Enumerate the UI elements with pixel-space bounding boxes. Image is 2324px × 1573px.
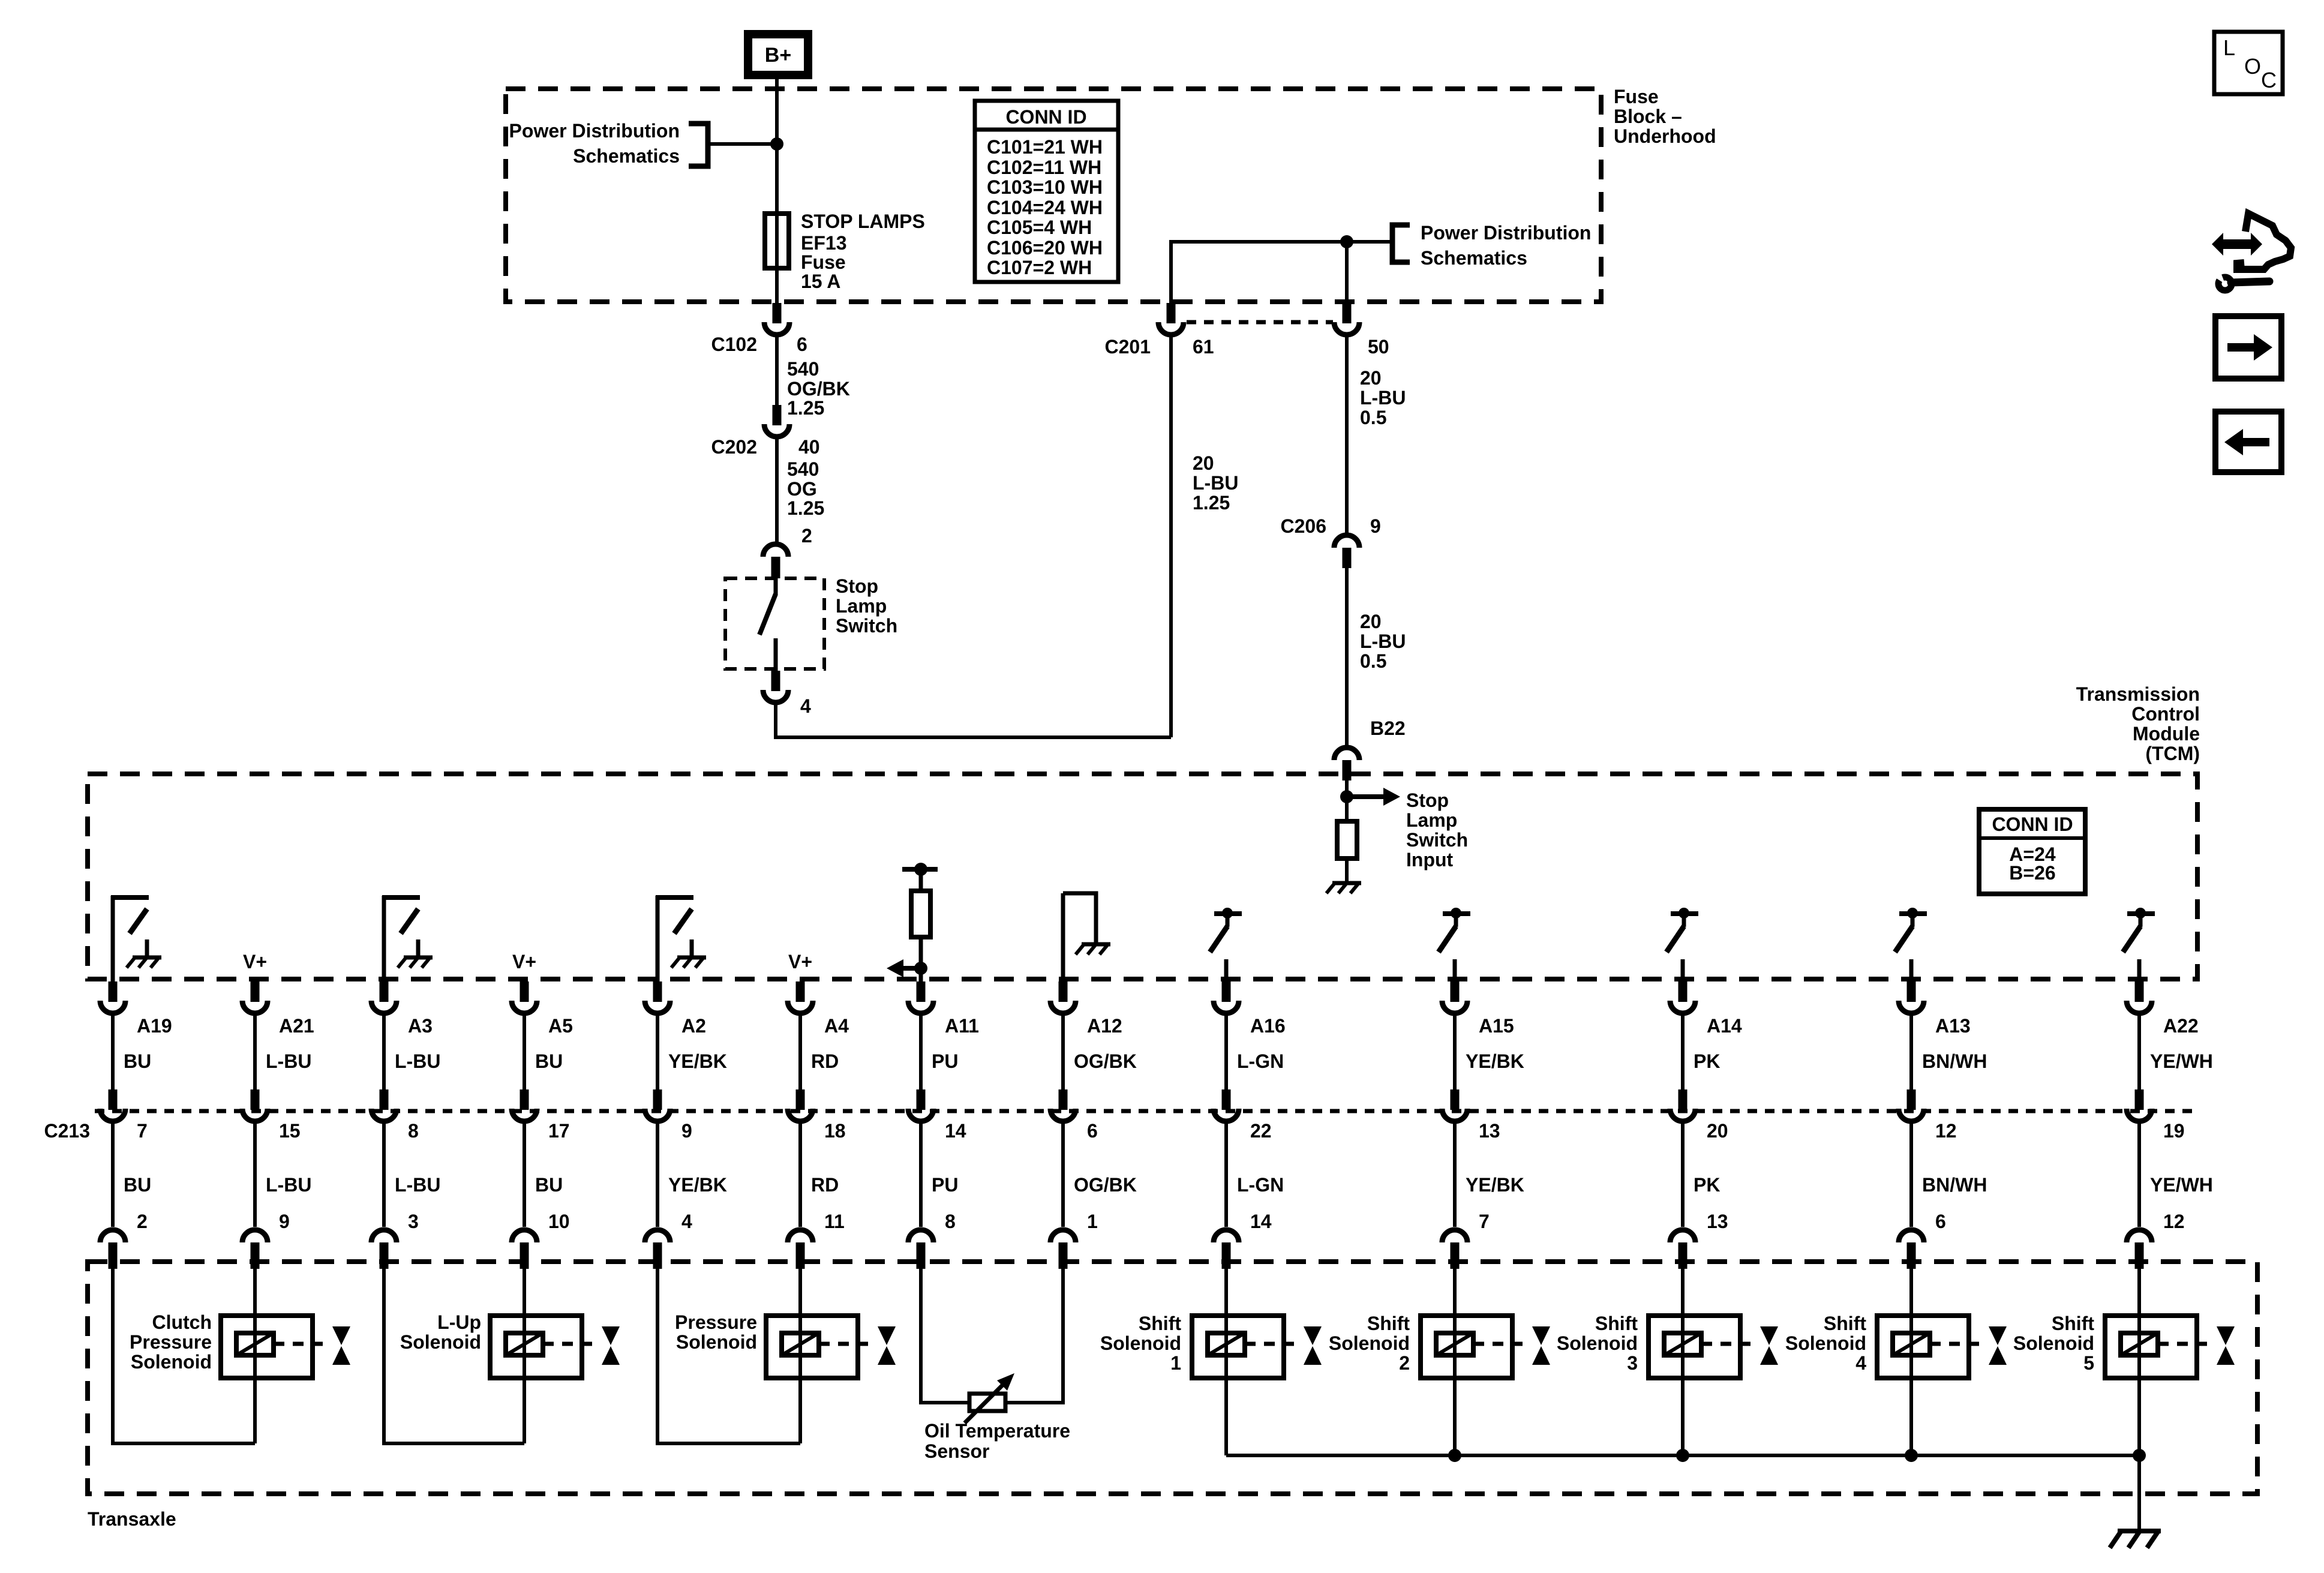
svg-text:61: 61 — [1193, 336, 1214, 358]
svg-text:Solenoid: Solenoid — [1557, 1332, 1638, 1354]
svg-text:9: 9 — [279, 1211, 290, 1232]
svg-text:540: 540 — [787, 458, 819, 480]
svg-text:8: 8 — [408, 1120, 419, 1142]
svg-text:Sensor: Sensor — [924, 1440, 989, 1462]
svg-text:Power Distribution: Power Distribution — [509, 120, 680, 142]
svg-text:14: 14 — [1250, 1211, 1272, 1232]
svg-text:Fuse: Fuse — [1614, 86, 1659, 107]
svg-text:PU: PU — [932, 1050, 958, 1072]
svg-text:4: 4 — [681, 1211, 692, 1232]
svg-text:2: 2 — [137, 1211, 148, 1232]
svg-text:C102: C102 — [711, 334, 758, 355]
svg-text:Transaxle: Transaxle — [88, 1508, 176, 1530]
svg-text:A15: A15 — [1479, 1015, 1514, 1037]
svg-text:Shift: Shift — [1139, 1313, 1181, 1334]
svg-text:19: 19 — [2163, 1120, 2185, 1142]
svg-text:V+: V+ — [512, 951, 536, 972]
svg-text:Solenoid: Solenoid — [1785, 1332, 1866, 1354]
svg-text:Switch: Switch — [836, 615, 897, 637]
svg-text:Pressure: Pressure — [675, 1311, 757, 1333]
svg-text:A2: A2 — [681, 1015, 706, 1037]
svg-text:540: 540 — [787, 358, 819, 380]
svg-text:Block –: Block – — [1614, 106, 1682, 127]
svg-text:6: 6 — [1935, 1211, 1946, 1232]
svg-text:Power Distribution: Power Distribution — [1421, 222, 1591, 244]
svg-text:B22: B22 — [1370, 718, 1406, 739]
svg-text:Transmission: Transmission — [2076, 683, 2200, 705]
svg-text:BU: BU — [535, 1174, 563, 1196]
svg-text:C107=2 WH: C107=2 WH — [987, 257, 1092, 278]
svg-text:A16: A16 — [1250, 1015, 1286, 1037]
svg-text:C101=21 WH: C101=21 WH — [987, 136, 1103, 158]
svg-text:YE/BK: YE/BK — [1466, 1174, 1524, 1196]
svg-text:1: 1 — [1087, 1211, 1098, 1232]
svg-text:Underhood: Underhood — [1614, 125, 1716, 147]
svg-text:A13: A13 — [1935, 1015, 1971, 1037]
svg-text:Solenoid: Solenoid — [676, 1331, 757, 1353]
svg-text:L-GN: L-GN — [1237, 1174, 1284, 1196]
svg-text:L-BU: L-BU — [1193, 472, 1238, 494]
svg-text:L-BU: L-BU — [266, 1050, 311, 1072]
svg-text:A3: A3 — [408, 1015, 433, 1037]
svg-text:8: 8 — [945, 1211, 956, 1232]
svg-text:Stop: Stop — [836, 575, 878, 597]
svg-text:OG/BK: OG/BK — [1074, 1050, 1137, 1072]
svg-text:A14: A14 — [1707, 1015, 1742, 1037]
svg-text:BN/WH: BN/WH — [1922, 1050, 1987, 1072]
svg-text:C105=4 WH: C105=4 WH — [987, 217, 1092, 238]
svg-text:OG/BK: OG/BK — [1074, 1174, 1137, 1196]
svg-text:Solenoid: Solenoid — [2013, 1332, 2094, 1354]
svg-text:22: 22 — [1250, 1120, 1272, 1142]
svg-text:2: 2 — [801, 525, 812, 547]
svg-text:Schematics: Schematics — [573, 145, 680, 167]
svg-text:6: 6 — [797, 334, 807, 355]
svg-text:11: 11 — [824, 1211, 845, 1232]
svg-text:L: L — [2223, 35, 2235, 60]
svg-text:4: 4 — [1855, 1352, 1866, 1374]
svg-text:13: 13 — [1479, 1120, 1500, 1142]
svg-text:7: 7 — [137, 1120, 148, 1142]
svg-text:A19: A19 — [137, 1015, 172, 1037]
svg-text:Oil Temperature: Oil Temperature — [924, 1420, 1070, 1442]
svg-text:50: 50 — [1368, 336, 1389, 358]
svg-text:9: 9 — [1370, 515, 1381, 537]
svg-text:7: 7 — [1479, 1211, 1490, 1232]
svg-text:CONN ID: CONN ID — [1005, 106, 1086, 128]
svg-text:C102=11 WH: C102=11 WH — [987, 157, 1101, 178]
svg-text:Shift: Shift — [1595, 1313, 1638, 1334]
svg-text:V+: V+ — [788, 951, 812, 972]
svg-text:O: O — [2244, 54, 2261, 79]
svg-text:1.25: 1.25 — [787, 397, 824, 419]
svg-text:12: 12 — [2163, 1211, 2185, 1232]
svg-text:YE/BK: YE/BK — [668, 1174, 727, 1196]
svg-text:OG/BK: OG/BK — [787, 378, 850, 400]
svg-text:Clutch: Clutch — [152, 1311, 212, 1333]
svg-text:Control: Control — [2131, 703, 2200, 725]
svg-text:Solenoid: Solenoid — [400, 1331, 481, 1353]
svg-text:Switch: Switch — [1406, 829, 1468, 851]
svg-text:17: 17 — [548, 1120, 570, 1142]
svg-text:15 A: 15 A — [801, 271, 840, 292]
svg-text:1: 1 — [1170, 1352, 1181, 1374]
svg-text:14: 14 — [945, 1120, 966, 1142]
svg-text:13: 13 — [1707, 1211, 1728, 1232]
svg-text:40: 40 — [798, 436, 820, 458]
svg-text:PK: PK — [1694, 1050, 1720, 1072]
svg-text:C106=20 WH: C106=20 WH — [987, 237, 1103, 259]
svg-text:L-BU: L-BU — [1360, 631, 1406, 652]
svg-text:C201: C201 — [1105, 336, 1151, 358]
svg-text:(TCM): (TCM) — [2145, 743, 2200, 764]
svg-text:C206: C206 — [1281, 515, 1327, 537]
svg-text:C213: C213 — [44, 1120, 91, 1142]
svg-text:B+: B+ — [765, 44, 791, 67]
svg-text:Lamp: Lamp — [836, 595, 887, 617]
svg-text:BN/WH: BN/WH — [1922, 1174, 1987, 1196]
svg-text:Shift: Shift — [2052, 1313, 2094, 1334]
svg-text:20: 20 — [1193, 452, 1214, 474]
svg-text:CONN ID: CONN ID — [1992, 813, 2073, 835]
svg-text:1.25: 1.25 — [787, 497, 824, 519]
svg-text:A12: A12 — [1087, 1015, 1122, 1037]
svg-text:2: 2 — [1399, 1352, 1410, 1374]
svg-text:A4: A4 — [824, 1015, 849, 1037]
svg-text:RD: RD — [811, 1050, 839, 1072]
svg-text:A5: A5 — [548, 1015, 573, 1037]
svg-text:20: 20 — [1707, 1120, 1728, 1142]
svg-text:PU: PU — [932, 1174, 958, 1196]
svg-text:A22: A22 — [2163, 1015, 2199, 1037]
svg-text:L-Up: L-Up — [437, 1311, 481, 1333]
svg-text:YE/WH: YE/WH — [2150, 1050, 2213, 1072]
svg-text:C103=10 WH: C103=10 WH — [987, 176, 1103, 198]
svg-text:YE/BK: YE/BK — [1466, 1050, 1524, 1072]
svg-text:BU: BU — [535, 1050, 563, 1072]
svg-text:10: 10 — [548, 1211, 570, 1232]
svg-text:C202: C202 — [711, 436, 758, 458]
svg-text:Solenoid: Solenoid — [1329, 1332, 1410, 1354]
svg-text:3: 3 — [1627, 1352, 1638, 1374]
svg-text:L-GN: L-GN — [1237, 1050, 1284, 1072]
svg-text:Shift: Shift — [1824, 1313, 1866, 1334]
svg-text:Solenoid: Solenoid — [1100, 1332, 1181, 1354]
svg-text:Module: Module — [2133, 723, 2200, 745]
svg-text:12: 12 — [1935, 1120, 1957, 1142]
svg-text:20: 20 — [1360, 367, 1382, 389]
svg-text:YE/BK: YE/BK — [668, 1050, 727, 1072]
svg-text:Solenoid: Solenoid — [131, 1351, 212, 1373]
svg-text:3: 3 — [408, 1211, 419, 1232]
svg-text:Lamp: Lamp — [1406, 809, 1457, 831]
svg-text:Input: Input — [1406, 849, 1454, 870]
svg-text:15: 15 — [279, 1120, 301, 1142]
svg-text:A11: A11 — [945, 1015, 979, 1037]
svg-text:RD: RD — [811, 1174, 839, 1196]
svg-text:C: C — [2261, 68, 2277, 92]
svg-text:L-BU: L-BU — [395, 1174, 440, 1196]
svg-text:Stop: Stop — [1406, 789, 1449, 811]
svg-text:OG: OG — [787, 478, 817, 500]
svg-text:BU: BU — [124, 1174, 151, 1196]
svg-text:9: 9 — [681, 1120, 692, 1142]
svg-text:0.5: 0.5 — [1360, 407, 1386, 428]
svg-text:BU: BU — [124, 1050, 151, 1072]
svg-text:6: 6 — [1087, 1120, 1098, 1142]
svg-text:C104=24 WH: C104=24 WH — [987, 197, 1103, 218]
svg-text:Pressure: Pressure — [130, 1331, 212, 1353]
svg-text:1.25: 1.25 — [1193, 492, 1230, 514]
svg-text:4: 4 — [800, 695, 811, 717]
svg-text:A21: A21 — [279, 1015, 314, 1037]
svg-text:20: 20 — [1360, 611, 1382, 632]
svg-text:YE/WH: YE/WH — [2150, 1174, 2213, 1196]
svg-text:Schematics: Schematics — [1421, 247, 1527, 269]
svg-text:0.5: 0.5 — [1360, 650, 1386, 672]
svg-text:B=26: B=26 — [2009, 862, 2055, 884]
svg-text:L-BU: L-BU — [395, 1050, 440, 1072]
svg-text:L-BU: L-BU — [1360, 387, 1406, 409]
svg-text:18: 18 — [824, 1120, 846, 1142]
svg-text:Shift: Shift — [1367, 1313, 1410, 1334]
svg-text:EF13: EF13 — [801, 232, 846, 254]
svg-text:L-BU: L-BU — [266, 1174, 311, 1196]
svg-text:V+: V+ — [243, 951, 267, 972]
svg-text:Fuse: Fuse — [801, 251, 846, 273]
svg-text:5: 5 — [2083, 1352, 2094, 1374]
svg-text:STOP LAMPS: STOP LAMPS — [801, 211, 925, 232]
svg-text:PK: PK — [1694, 1174, 1720, 1196]
